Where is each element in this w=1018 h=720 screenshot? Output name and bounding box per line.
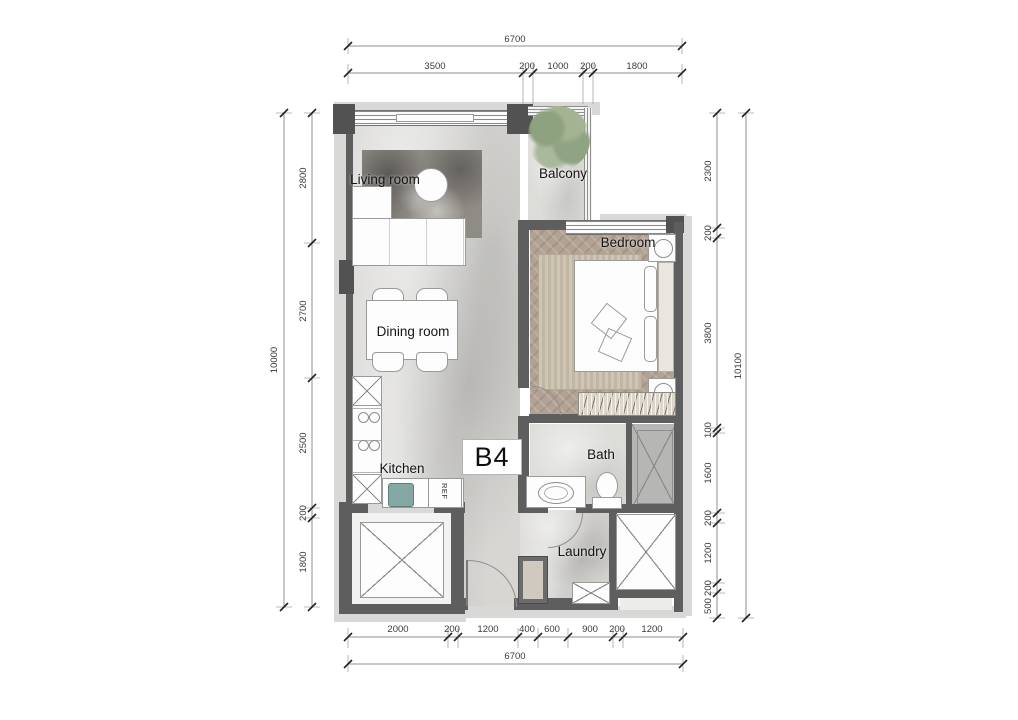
dim-bottom-seg: 200 bbox=[444, 624, 460, 635]
bedroom-label: Bedroom bbox=[586, 235, 670, 250]
dim-top-seg: 3500 bbox=[424, 61, 445, 72]
dim-right-seg: 3800 bbox=[703, 322, 714, 343]
balcony-label: Balcony bbox=[531, 166, 595, 181]
stove-burner bbox=[358, 412, 369, 423]
dim-left-total: 10000 bbox=[269, 347, 280, 373]
kitchen-sink bbox=[388, 483, 414, 507]
washing-machine-front bbox=[523, 561, 543, 599]
window-bedroom bbox=[566, 220, 670, 235]
laundry-appliance bbox=[572, 582, 610, 604]
shadow-right bbox=[683, 216, 692, 616]
dim-right-seg: 200 bbox=[703, 510, 714, 526]
elevator-shaft bbox=[360, 522, 444, 598]
wall-bedroom-top bbox=[518, 220, 570, 230]
dim-top-seg: 1800 bbox=[626, 61, 647, 72]
dim-left-seg: 1800 bbox=[298, 551, 309, 572]
unit-label: B4 bbox=[462, 439, 522, 475]
dim-bottom-seg: 200 bbox=[609, 624, 625, 635]
refrigerator-label: REF bbox=[440, 483, 449, 500]
dim-top-seg: 200 bbox=[580, 61, 596, 72]
dim-bottom-seg: 1200 bbox=[477, 624, 498, 635]
sofa bbox=[352, 218, 466, 266]
dim-right-seg: 200 bbox=[703, 225, 714, 241]
kitchen-cabinet bbox=[352, 474, 382, 504]
dim-right-total: 10100 bbox=[733, 353, 744, 379]
toilet-tank bbox=[592, 497, 622, 509]
dim-bottom-seg: 2000 bbox=[387, 624, 408, 635]
bath-label: Bath bbox=[579, 447, 623, 462]
dim-right-seg: 100 bbox=[703, 422, 714, 438]
wall-elevator-right bbox=[451, 502, 464, 614]
dim-left-seg: 2500 bbox=[298, 432, 309, 453]
pillow bbox=[644, 316, 657, 362]
dim-bottom-seg: 600 bbox=[544, 624, 560, 635]
dim-bottom-seg: 900 bbox=[582, 624, 598, 635]
balcony-plant bbox=[528, 106, 590, 170]
stove-burner bbox=[369, 412, 380, 423]
dim-right-seg: 1600 bbox=[703, 462, 714, 483]
dim-bottom-seg: 1200 bbox=[641, 624, 662, 635]
wardrobe bbox=[578, 392, 676, 416]
wall-bath-shower bbox=[626, 423, 632, 508]
dim-top-seg: 1000 bbox=[547, 61, 568, 72]
toilet-bowl bbox=[596, 472, 618, 500]
stove-burner bbox=[358, 440, 369, 451]
dim-left-seg: 200 bbox=[298, 505, 309, 521]
dim-right-seg: 2300 bbox=[703, 160, 714, 181]
wall-elevator-bottom bbox=[339, 604, 465, 614]
dining-chair bbox=[416, 352, 448, 372]
dim-top-seg: 200 bbox=[519, 61, 535, 72]
floor-plan-canvas: REF Living room Balcony Bedroom Dining r… bbox=[0, 0, 1018, 720]
shaft-niche bbox=[620, 598, 672, 610]
laundry-label: Laundry bbox=[550, 544, 614, 559]
dim-bottom-total: 6700 bbox=[504, 651, 525, 662]
wall-bath-laundry-right bbox=[576, 504, 676, 513]
pillow bbox=[644, 266, 657, 312]
dim-right-seg: 500 bbox=[703, 598, 714, 614]
dim-left-seg: 2700 bbox=[298, 300, 309, 321]
service-shaft bbox=[616, 514, 676, 590]
wall-divider-upper bbox=[518, 230, 529, 388]
headboard bbox=[658, 262, 674, 372]
dining-room-label: Dining room bbox=[368, 324, 458, 339]
dim-left-seg: 2800 bbox=[298, 167, 309, 188]
wall-elevator-left bbox=[339, 502, 352, 614]
kitchen-cabinet bbox=[352, 376, 382, 406]
living-room-label: Living room bbox=[343, 172, 427, 187]
shower-tray bbox=[637, 430, 673, 504]
kitchen-label: Kitchen bbox=[366, 461, 438, 476]
dim-right-seg: 200 bbox=[703, 580, 714, 596]
dim-bottom-seg: 400 bbox=[519, 624, 535, 635]
tv-console bbox=[396, 114, 474, 122]
stove-burner bbox=[369, 440, 380, 451]
dim-right-seg: 1200 bbox=[703, 542, 714, 563]
bath-sink-basin bbox=[544, 486, 568, 500]
wall-corner-top-left bbox=[333, 104, 355, 134]
dim-top-total: 6700 bbox=[504, 34, 525, 45]
dining-chair bbox=[372, 352, 404, 372]
